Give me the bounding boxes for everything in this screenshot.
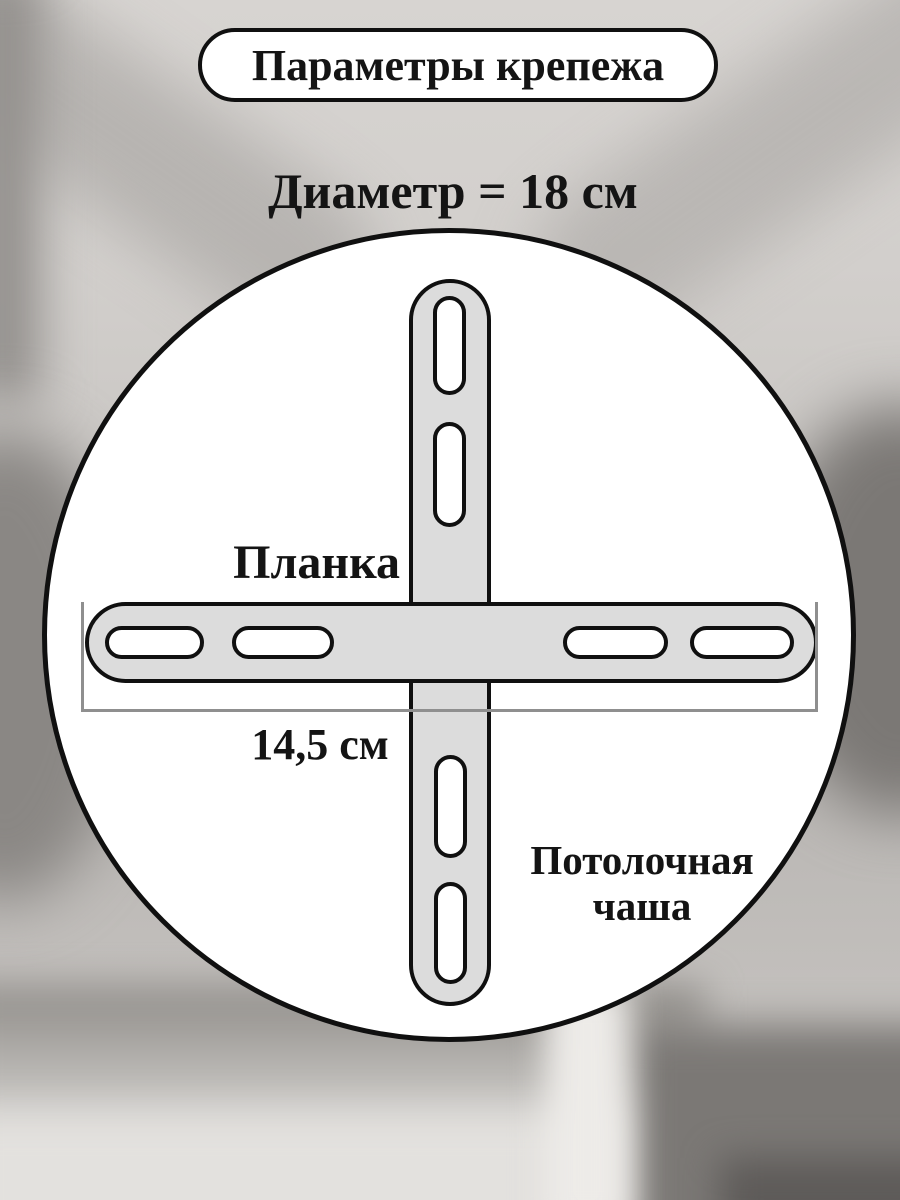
screw-slot-bottom-1: [434, 755, 467, 858]
background-bottom-right-dark: [630, 1025, 900, 1200]
ceiling-cup-label-line2: чаша: [502, 884, 782, 930]
title-text: Параметры крепежа: [252, 40, 664, 91]
plank-length-label: 14,5 см: [235, 719, 405, 770]
dimension-bracket: [81, 602, 818, 712]
screw-slot-top-2: [433, 422, 466, 527]
ceiling-cup-label: Потолочная чаша: [502, 838, 782, 930]
title-pill: Параметры крепежа: [198, 28, 718, 102]
background-bottom-right-corner-shadow: [720, 1158, 900, 1200]
diameter-label: Диаметр = 18 см: [153, 162, 753, 220]
background-bottom-light-area: [0, 1112, 685, 1200]
screw-slot-bottom-2: [434, 882, 467, 984]
ceiling-cup-label-line1: Потолочная: [502, 838, 782, 884]
plank-label: Планка: [233, 535, 400, 590]
product-infographic: Параметры крепежа Диаметр = 18 см Планка…: [0, 0, 900, 1200]
background-left-edge-shadow: [0, 0, 40, 400]
screw-slot-top-1: [433, 296, 466, 395]
